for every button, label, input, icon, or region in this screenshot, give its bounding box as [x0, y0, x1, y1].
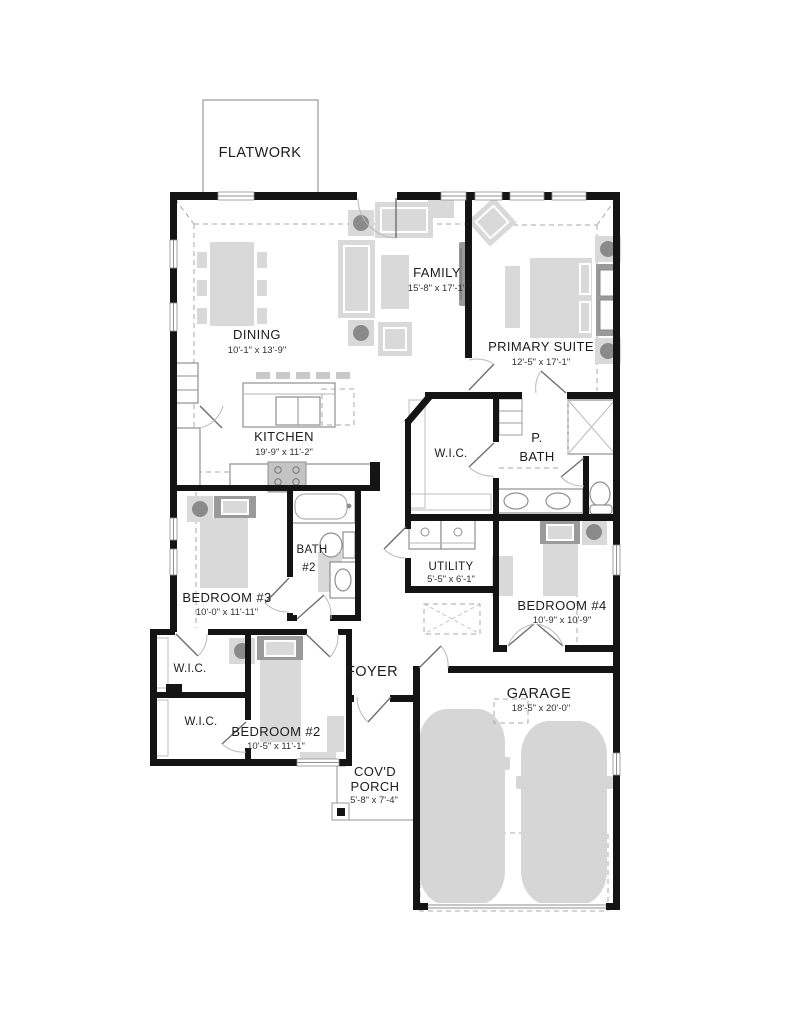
- bedroom4-label: BEDROOM #4: [517, 598, 606, 613]
- window-top-4: [510, 192, 544, 200]
- family-label: FAMILY: [413, 265, 461, 280]
- utility-fixtures: [409, 519, 475, 549]
- bedroom2-label: BEDROOM #2: [231, 724, 320, 739]
- dining-table-set: [197, 242, 267, 326]
- bath2-label-1: BATH: [296, 544, 327, 556]
- bath2-label-2: #2: [302, 562, 315, 574]
- bedroom4-double-door: [508, 624, 563, 646]
- window-top-1: [218, 192, 254, 200]
- window-top-2: [441, 192, 466, 200]
- dining-dims: 10'-1" x 13'-9": [228, 345, 286, 356]
- porch-dims: 5'-8" x 7'-4": [350, 795, 398, 806]
- window-top-5: [552, 192, 586, 200]
- family-dims: 15'-8" x 17'-1": [408, 283, 466, 294]
- utility-dims: 5'-5" x 6'-1": [427, 574, 475, 585]
- wic-primary-label: W.I.C.: [434, 448, 467, 460]
- dining-label: DINING: [233, 327, 281, 342]
- bedroom2-dims: 10'-5" x 11'-1": [247, 741, 305, 752]
- garage-cars: [414, 699, 613, 911]
- bedroom3-dims: 10'-0" x 11'-11": [196, 607, 258, 618]
- flatwork-label: FLATWORK: [219, 145, 302, 161]
- primary-suite-dims: 12'-5" x 17'-1": [512, 357, 570, 368]
- attic-access: [424, 604, 480, 634]
- bath2-door: [297, 595, 331, 619]
- front-door: [357, 697, 391, 722]
- toilet-door: [561, 458, 584, 486]
- foyer-label: FOYER: [346, 664, 398, 680]
- family-hall-door: [469, 359, 494, 390]
- garage-label: GARAGE: [507, 686, 571, 702]
- primary-suite-label: PRIMARY SUITE: [488, 339, 594, 354]
- wic-primary-door: [469, 443, 494, 476]
- floor-plan-svg: FLATWORK FAMILY 15'-8" x 17'-1" DINING 1…: [0, 0, 792, 1024]
- wic1-door: [176, 634, 207, 656]
- porch-label-1: COV'D: [354, 764, 396, 779]
- utility-label: UTILITY: [429, 561, 474, 573]
- window-left-4: [170, 549, 177, 575]
- bedroom4-dims: 10'-9" x 10'-9": [533, 615, 591, 626]
- garage-entry-door: [419, 646, 448, 668]
- pbath-fixtures: [495, 400, 615, 514]
- window-bedroom4: [613, 545, 620, 575]
- pbath-label-2: BATH: [519, 449, 554, 464]
- utility-door: [384, 527, 406, 558]
- window-top-3: [475, 192, 502, 200]
- garage-dims: 18'-5" x 20'-0": [512, 703, 570, 714]
- kitchen-label: KITCHEN: [254, 429, 314, 444]
- window-garage: [613, 753, 620, 775]
- pbath-label-1: P.: [531, 430, 542, 445]
- bedroom2-door: [306, 634, 338, 657]
- window-left-3: [170, 518, 177, 540]
- wic1-label: W.I.C.: [173, 663, 206, 675]
- window-bedroom2: [297, 759, 339, 766]
- floor-plan-canvas: FLATWORK FAMILY 15'-8" x 17'-1" DINING 1…: [0, 0, 792, 1024]
- garage-door: [428, 903, 606, 910]
- porch-label-2: PORCH: [351, 779, 400, 794]
- wic2-label: W.I.C.: [184, 716, 217, 728]
- pantry-door: [200, 406, 223, 428]
- bedroom3-label: BEDROOM #3: [182, 590, 271, 605]
- window-left-2: [170, 303, 177, 331]
- primary-bath-door: [536, 371, 566, 393]
- window-left-1: [170, 240, 177, 268]
- kitchen-dims: 19'-9" x 11'-2": [255, 447, 313, 458]
- bedroom4-furniture: [492, 520, 607, 596]
